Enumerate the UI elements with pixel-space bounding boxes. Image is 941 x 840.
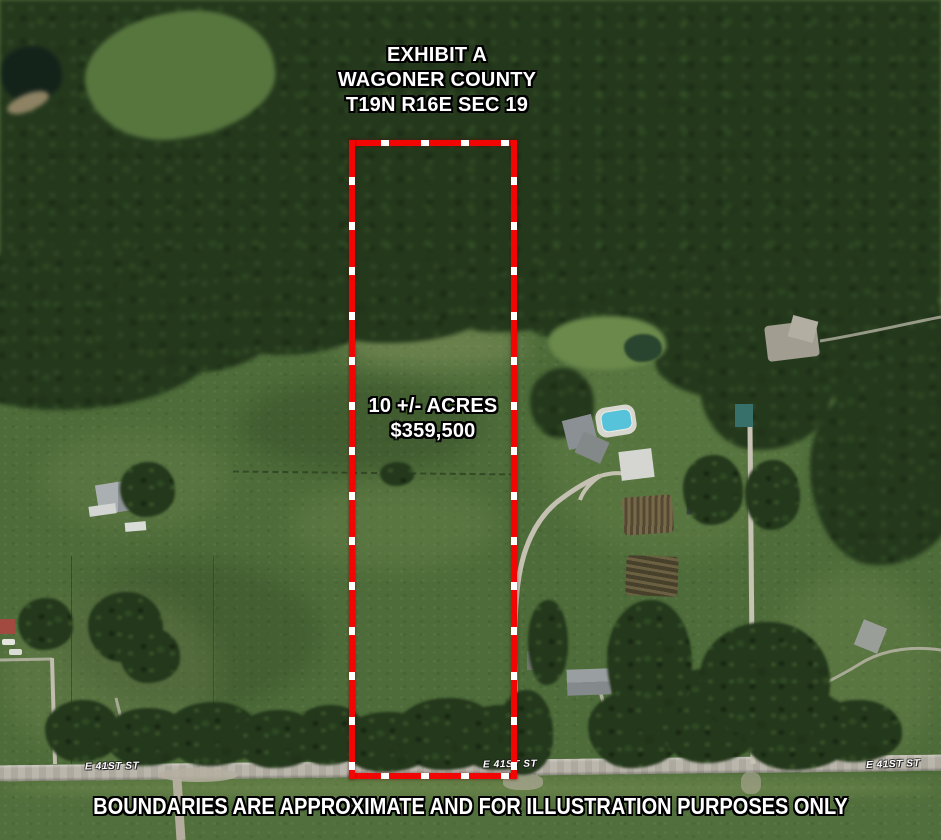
acreage-text: 10 +/- ACRES xyxy=(333,394,533,419)
boundary-edge-bottom xyxy=(349,773,517,779)
boundary-edge-right xyxy=(511,140,517,779)
aerial-map-exhibit: E 41ST ST E 41ST ST E 41ST ST EXHIBIT A … xyxy=(0,0,941,840)
boundary-edge-left xyxy=(349,140,355,779)
parcel-label: 10 +/- ACRES $359,500 xyxy=(333,394,533,444)
title-line-2: WAGONER COUNTY xyxy=(257,68,617,93)
disclaimer-text: BOUNDARIES ARE APPROXIMATE AND FOR ILLUS… xyxy=(61,793,880,820)
title-line-1: EXHIBIT A xyxy=(257,43,617,68)
exhibit-title: EXHIBIT A WAGONER COUNTY T19N R16E SEC 1… xyxy=(257,43,617,118)
title-line-3: T19N R16E SEC 19 xyxy=(257,93,617,118)
price-text: $359,500 xyxy=(333,419,533,444)
boundary-edge-top xyxy=(349,140,517,146)
